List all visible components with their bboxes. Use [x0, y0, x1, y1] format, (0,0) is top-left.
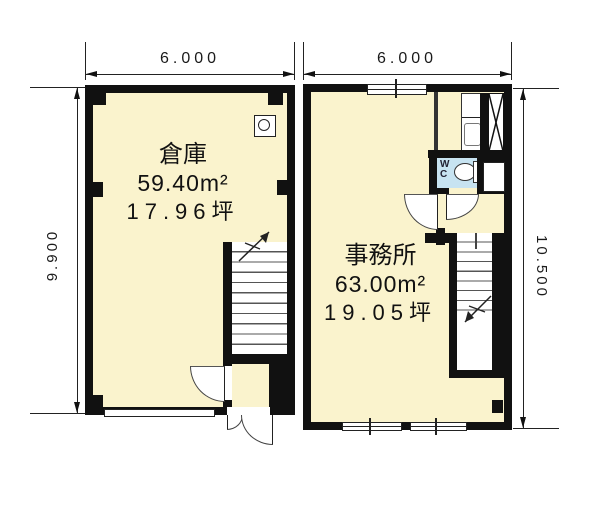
stair-direction-arrow: [455, 290, 497, 330]
extension-line: [294, 42, 295, 80]
wc-wall: [428, 150, 506, 158]
stair-wall: [269, 364, 287, 407]
duct-shaft: [488, 93, 504, 152]
stair-wall: [232, 354, 287, 364]
window-tick: [435, 418, 437, 435]
window-line: [343, 426, 401, 427]
arrowhead: [74, 402, 80, 413]
arrowhead: [500, 71, 511, 77]
dimension-line: [77, 88, 78, 413]
wc-wall: [429, 158, 437, 194]
dimension-height-left: 9.900: [44, 215, 64, 295]
dimension-width-right: 6.000: [337, 50, 477, 68]
room-area-tsubo: 19.05坪: [303, 298, 458, 327]
pillar: [277, 180, 287, 195]
window: [410, 422, 467, 431]
stair-wall: [449, 370, 506, 378]
shaft-wall: [480, 93, 488, 152]
room-area-m2: 59.40m²: [98, 169, 268, 197]
window-line: [368, 89, 426, 90]
extension-line: [511, 42, 512, 80]
wc-label: WC: [440, 160, 451, 180]
pipe-circle-icon: [258, 119, 270, 131]
dimension-height-right: 10.500: [530, 225, 550, 309]
pillar: [93, 93, 106, 105]
dimension-line: [304, 74, 511, 75]
arrowhead: [304, 71, 315, 77]
pillar: [492, 400, 503, 413]
room-name: 事務所: [303, 242, 458, 270]
dimension-line: [523, 89, 524, 428]
dimension-line: [86, 74, 294, 75]
pillar: [93, 395, 103, 409]
sink-icon: [464, 123, 481, 146]
window: [367, 84, 427, 95]
pipe-space: [254, 115, 276, 137]
arrowhead: [283, 71, 294, 77]
window: [342, 422, 402, 431]
stair-landing: [232, 364, 269, 407]
step-divider: [475, 233, 477, 249]
arrowhead: [520, 89, 526, 100]
arrowhead: [74, 88, 80, 99]
entrance-door-large-swing: [241, 415, 273, 445]
extension-line: [30, 413, 85, 414]
office-plan: WC: [303, 84, 512, 430]
warehouse-plan: 倉庫 59.40m² 17.96坪: [85, 85, 295, 415]
extension-line: [513, 428, 559, 429]
shutter-window: [104, 409, 215, 417]
arrowhead: [86, 71, 97, 77]
stair-direction-arrow: [233, 223, 279, 265]
closet: [483, 162, 505, 192]
floorplan-canvas: 倉庫 59.40m² 17.96坪 WC: [0, 0, 604, 517]
room-area-tsubo: 17.96坪: [98, 197, 268, 226]
office-label-block: 事務所 63.00m² 19.05坪: [303, 242, 458, 327]
window-tick: [369, 418, 371, 435]
arrowhead: [520, 417, 526, 428]
entrance-opening: [227, 407, 270, 415]
room-name: 倉庫: [98, 141, 268, 169]
window-tick: [395, 79, 397, 98]
pillar: [268, 93, 283, 105]
window-line: [411, 426, 466, 427]
room-area-m2: 63.00m²: [303, 270, 458, 298]
partition-wall: [434, 92, 438, 152]
shaft-x-icon: [489, 94, 503, 151]
dimension-width-left: 6.000: [120, 50, 260, 68]
warehouse-label-block: 倉庫 59.40m² 17.96坪: [98, 141, 268, 226]
